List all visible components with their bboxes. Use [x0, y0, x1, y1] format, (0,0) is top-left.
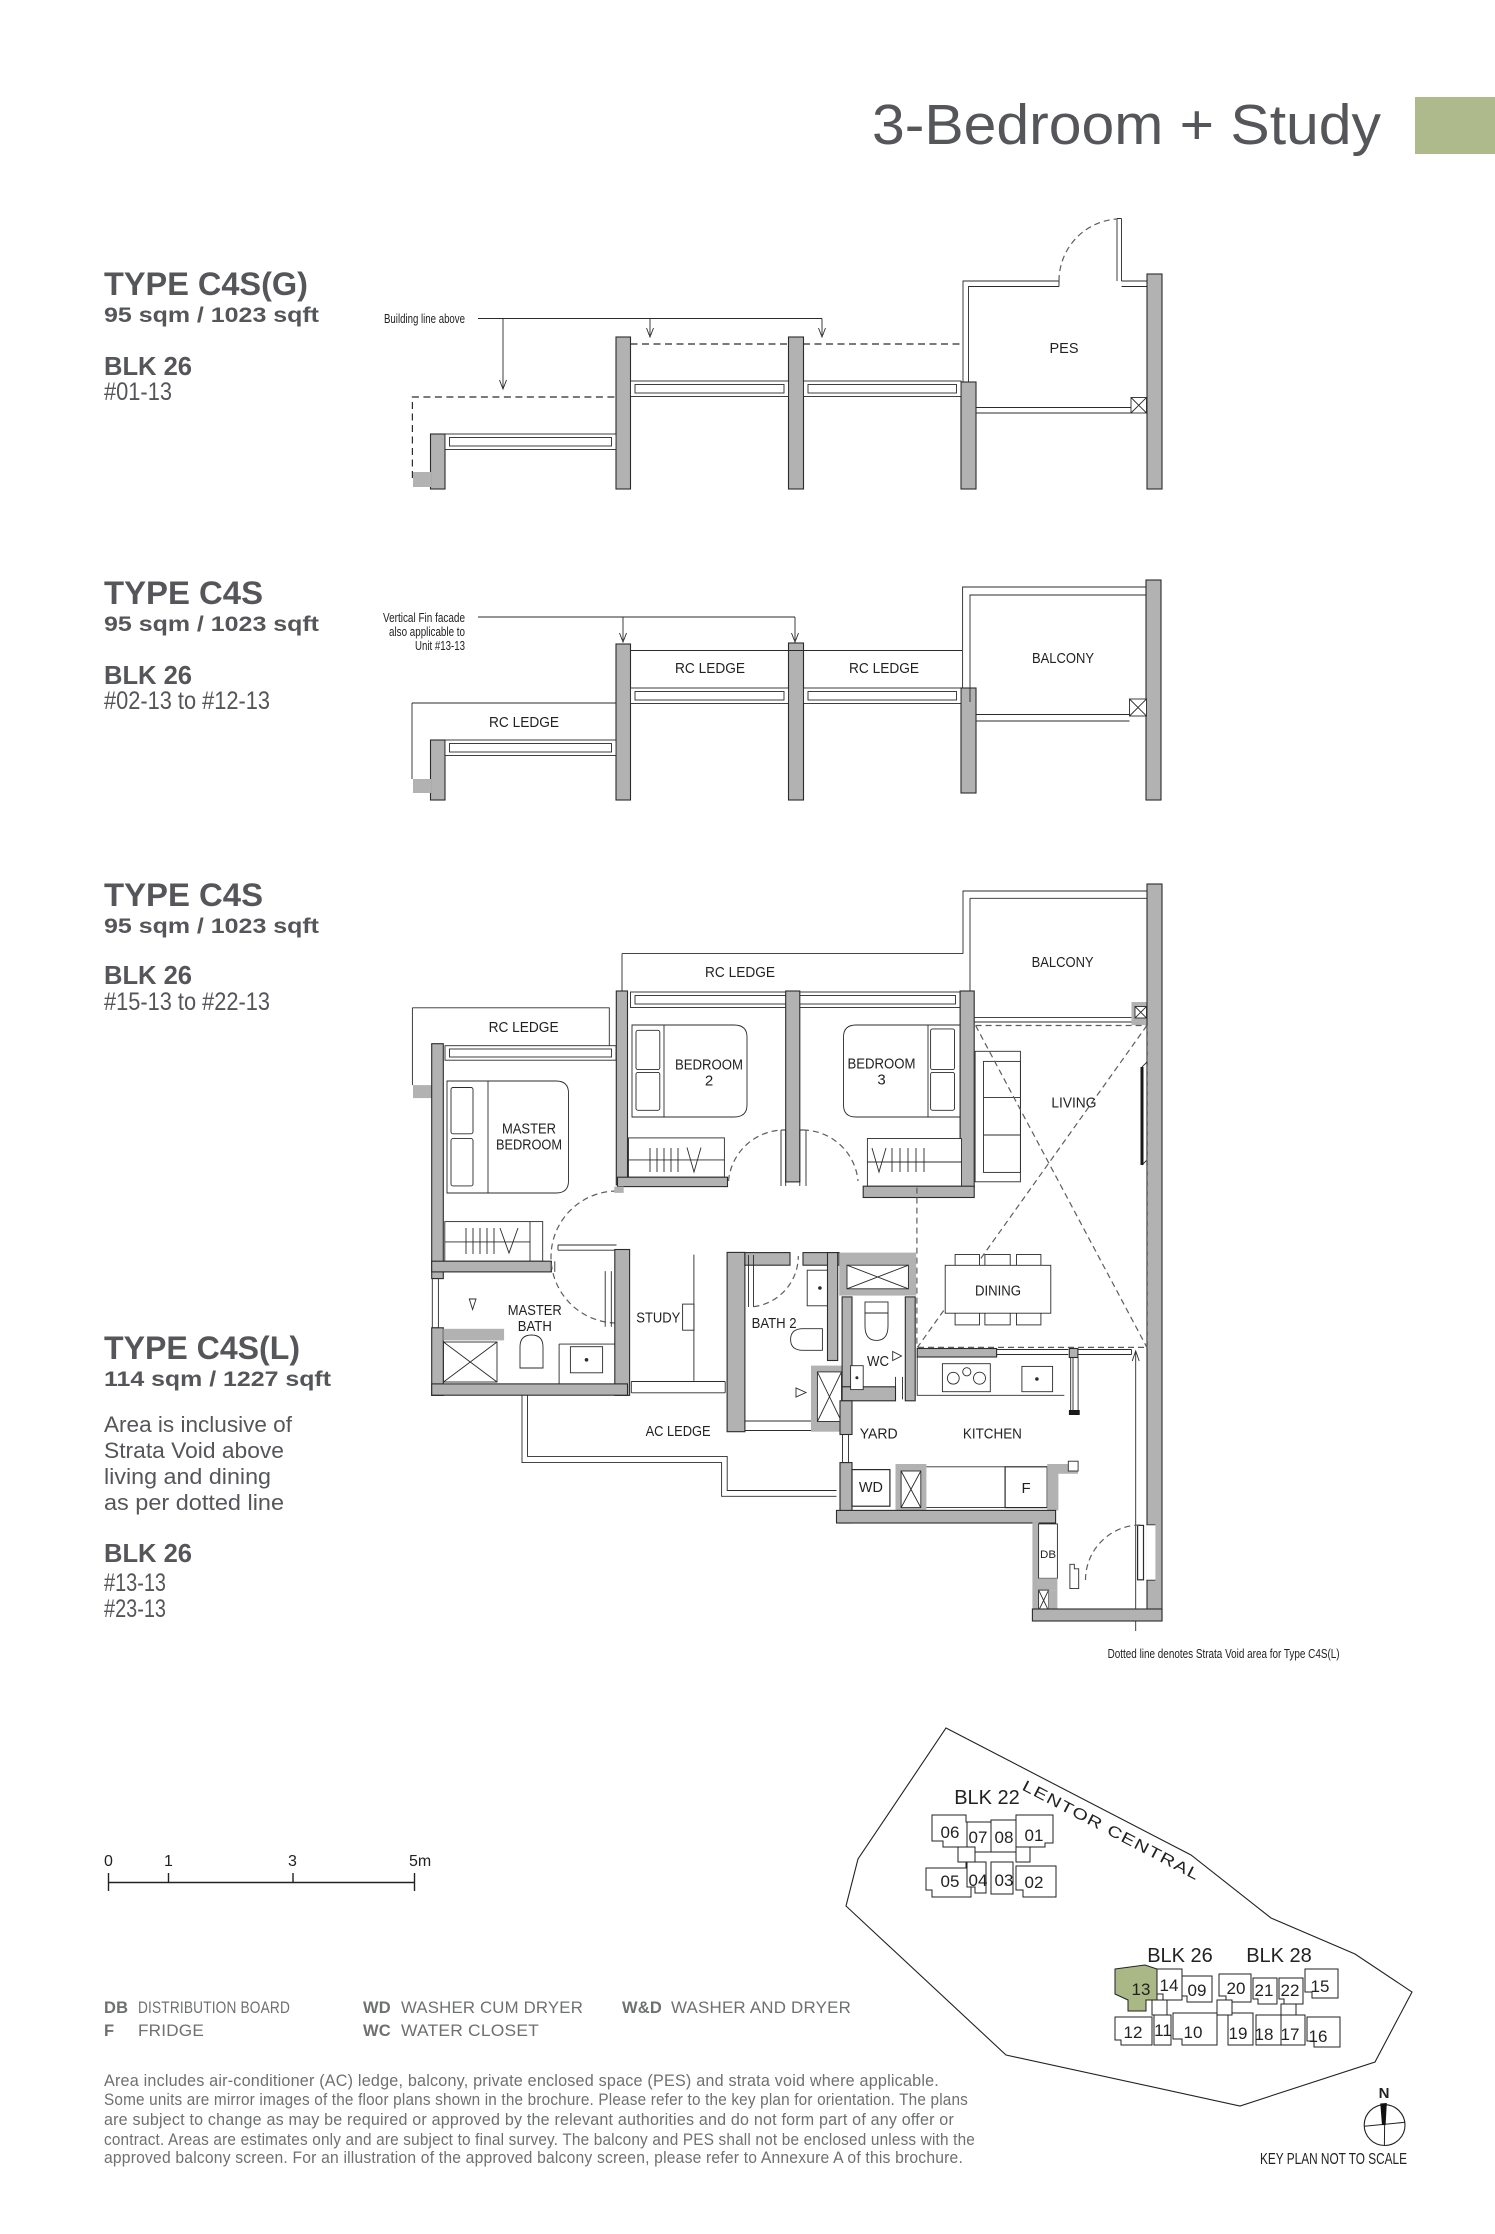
svg-text:01: 01: [1025, 1826, 1044, 1845]
svg-text:BALCONY: BALCONY: [1032, 650, 1094, 667]
svg-text:20: 20: [1227, 1979, 1246, 1998]
svg-text:RC LEDGE: RC LEDGE: [489, 714, 559, 731]
svg-text:contract. Areas are estimates: contract. Areas are estimates only and a…: [104, 2131, 975, 2149]
svg-text:Unit #13-13: Unit #13-13: [415, 639, 465, 653]
svg-text:95 sqm / 1023 sqft: 95 sqm / 1023 sqft: [104, 304, 319, 327]
svg-text:KITCHEN: KITCHEN: [963, 1426, 1022, 1443]
svg-text:are subject to change as may b: are subject to change as may be required…: [104, 2111, 954, 2129]
svg-text:11: 11: [1154, 2021, 1172, 2040]
svg-text:07: 07: [969, 1828, 988, 1847]
svg-text:3: 3: [288, 1853, 297, 1870]
svg-text:95 sqm / 1023 sqft: 95 sqm / 1023 sqft: [104, 915, 319, 938]
svg-text:DINING: DINING: [975, 1283, 1021, 1300]
svg-text:DB: DB: [1040, 1549, 1056, 1561]
svg-text:WD: WD: [363, 1999, 391, 2017]
svg-text:2: 2: [705, 1073, 713, 1090]
svg-text:DISTRIBUTION BOARD: DISTRIBUTION BOARD: [138, 1999, 290, 2017]
svg-text:13: 13: [1132, 1980, 1151, 1999]
svg-text:WASHER CUM DRYER: WASHER CUM DRYER: [401, 1999, 583, 2017]
svg-text:3-Bedroom + Study: 3-Bedroom + Study: [872, 93, 1382, 157]
svg-text:WATER CLOSET: WATER CLOSET: [401, 2022, 539, 2040]
svg-text:YARD: YARD: [860, 1426, 898, 1443]
svg-text:22: 22: [1281, 1981, 1300, 2000]
svg-text:02: 02: [1025, 1873, 1044, 1892]
svg-text:08: 08: [995, 1828, 1014, 1847]
svg-text:TYPE C4S(L): TYPE C4S(L): [104, 1330, 300, 1366]
svg-text:#01-13: #01-13: [104, 378, 172, 406]
svg-text:KEY PLAN NOT TO SCALE: KEY PLAN NOT TO SCALE: [1260, 2151, 1407, 2168]
svg-text:#02-13 to #12-13: #02-13 to #12-13: [104, 687, 270, 715]
svg-text:FRIDGE: FRIDGE: [138, 2022, 204, 2040]
svg-text:LIVING: LIVING: [1051, 1095, 1096, 1112]
svg-text:#13-13: #13-13: [104, 1569, 166, 1597]
svg-text:BATH 2: BATH 2: [752, 1315, 797, 1332]
svg-text:16: 16: [1309, 2027, 1328, 2046]
svg-text:BATH: BATH: [518, 1318, 552, 1335]
svg-text:BLK 22: BLK 22: [954, 1787, 1020, 1809]
svg-text:RC LEDGE: RC LEDGE: [675, 660, 745, 677]
svg-text:WC: WC: [363, 2022, 391, 2040]
svg-text:N: N: [1379, 2085, 1390, 2102]
svg-text:Dotted line denotes Strata Voi: Dotted line denotes Strata Void area for…: [1108, 1646, 1340, 1661]
svg-text:Area includes air-conditioner: Area includes air-conditioner (AC) ledge…: [104, 2072, 939, 2090]
svg-text:TYPE C4S(G): TYPE C4S(G): [104, 266, 308, 302]
svg-text:0: 0: [104, 1853, 113, 1870]
svg-text:RC LEDGE: RC LEDGE: [705, 964, 775, 981]
svg-text:95 sqm / 1023 sqft: 95 sqm / 1023 sqft: [104, 613, 319, 636]
svg-text:Vertical Fin facade: Vertical Fin facade: [383, 611, 465, 625]
svg-text:BEDROOM: BEDROOM: [675, 1057, 743, 1074]
svg-text:05: 05: [941, 1872, 960, 1891]
svg-text:approved balcony screen. For a: approved balcony screen. For an illustra…: [104, 2149, 963, 2167]
svg-text:#15-13 to #22-13: #15-13 to #22-13: [104, 988, 270, 1016]
svg-text:12: 12: [1124, 2023, 1143, 2042]
svg-text:BEDROOM: BEDROOM: [848, 1056, 916, 1073]
svg-text:DB: DB: [104, 1999, 128, 2017]
svg-text:WC: WC: [867, 1353, 889, 1370]
svg-text:114 sqm / 1227 sqft: 114 sqm / 1227 sqft: [104, 1368, 331, 1391]
svg-text:10: 10: [1184, 2023, 1203, 2042]
svg-text:04: 04: [969, 1871, 988, 1890]
svg-text:15: 15: [1311, 1977, 1330, 1996]
svg-text:Strata Void above: Strata Void above: [104, 1438, 284, 1463]
svg-text:BEDROOM: BEDROOM: [496, 1137, 562, 1154]
svg-text:Building line above: Building line above: [384, 312, 465, 326]
svg-text:as per dotted line: as per dotted line: [104, 1490, 284, 1515]
svg-text:21: 21: [1255, 1981, 1274, 2000]
svg-text:17: 17: [1281, 2025, 1300, 2044]
svg-text:3: 3: [877, 1072, 885, 1089]
svg-text:WASHER AND DRYER: WASHER AND DRYER: [671, 1999, 851, 2017]
svg-text:1: 1: [164, 1853, 173, 1870]
svg-text:F: F: [1022, 1480, 1031, 1497]
svg-text:Area is inclusive of: Area is inclusive of: [104, 1412, 293, 1437]
svg-text:BLK 26: BLK 26: [104, 660, 192, 690]
svg-text:RC LEDGE: RC LEDGE: [489, 1019, 559, 1036]
svg-text:MASTER: MASTER: [502, 1121, 556, 1138]
svg-text:TYPE C4S: TYPE C4S: [104, 575, 263, 611]
svg-text:living and dining: living and dining: [104, 1464, 271, 1489]
svg-text:14: 14: [1160, 1976, 1179, 1995]
svg-text:PES: PES: [1050, 340, 1079, 357]
svg-text:STUDY: STUDY: [636, 1310, 680, 1327]
svg-text:TYPE C4S: TYPE C4S: [104, 877, 263, 913]
svg-text:Some units are mirror images o: Some units are mirror images of the floo…: [104, 2091, 968, 2109]
svg-text:5m: 5m: [409, 1853, 431, 1870]
svg-text:BLK 26: BLK 26: [1147, 1945, 1213, 1967]
svg-text:#23-13: #23-13: [104, 1595, 166, 1623]
svg-text:RC LEDGE: RC LEDGE: [849, 660, 919, 677]
svg-text:09: 09: [1188, 1981, 1207, 2000]
svg-text:03: 03: [995, 1871, 1014, 1890]
svg-text:BALCONY: BALCONY: [1032, 954, 1094, 971]
svg-text:WD: WD: [859, 1479, 883, 1496]
svg-text:18: 18: [1255, 2025, 1274, 2044]
svg-text:BLK 26: BLK 26: [104, 960, 192, 990]
svg-text:F: F: [104, 2022, 114, 2040]
svg-text:BLK 28: BLK 28: [1246, 1945, 1312, 1967]
svg-text:19: 19: [1229, 2024, 1248, 2043]
svg-text:BLK 26: BLK 26: [104, 1538, 192, 1568]
svg-text:W&D: W&D: [622, 1999, 662, 2017]
svg-text:also applicable to: also applicable to: [389, 625, 465, 639]
svg-text:BLK 26: BLK 26: [104, 351, 192, 381]
svg-text:06: 06: [941, 1823, 960, 1842]
svg-text:MASTER: MASTER: [508, 1302, 562, 1319]
svg-text:AC LEDGE: AC LEDGE: [646, 1423, 711, 1440]
